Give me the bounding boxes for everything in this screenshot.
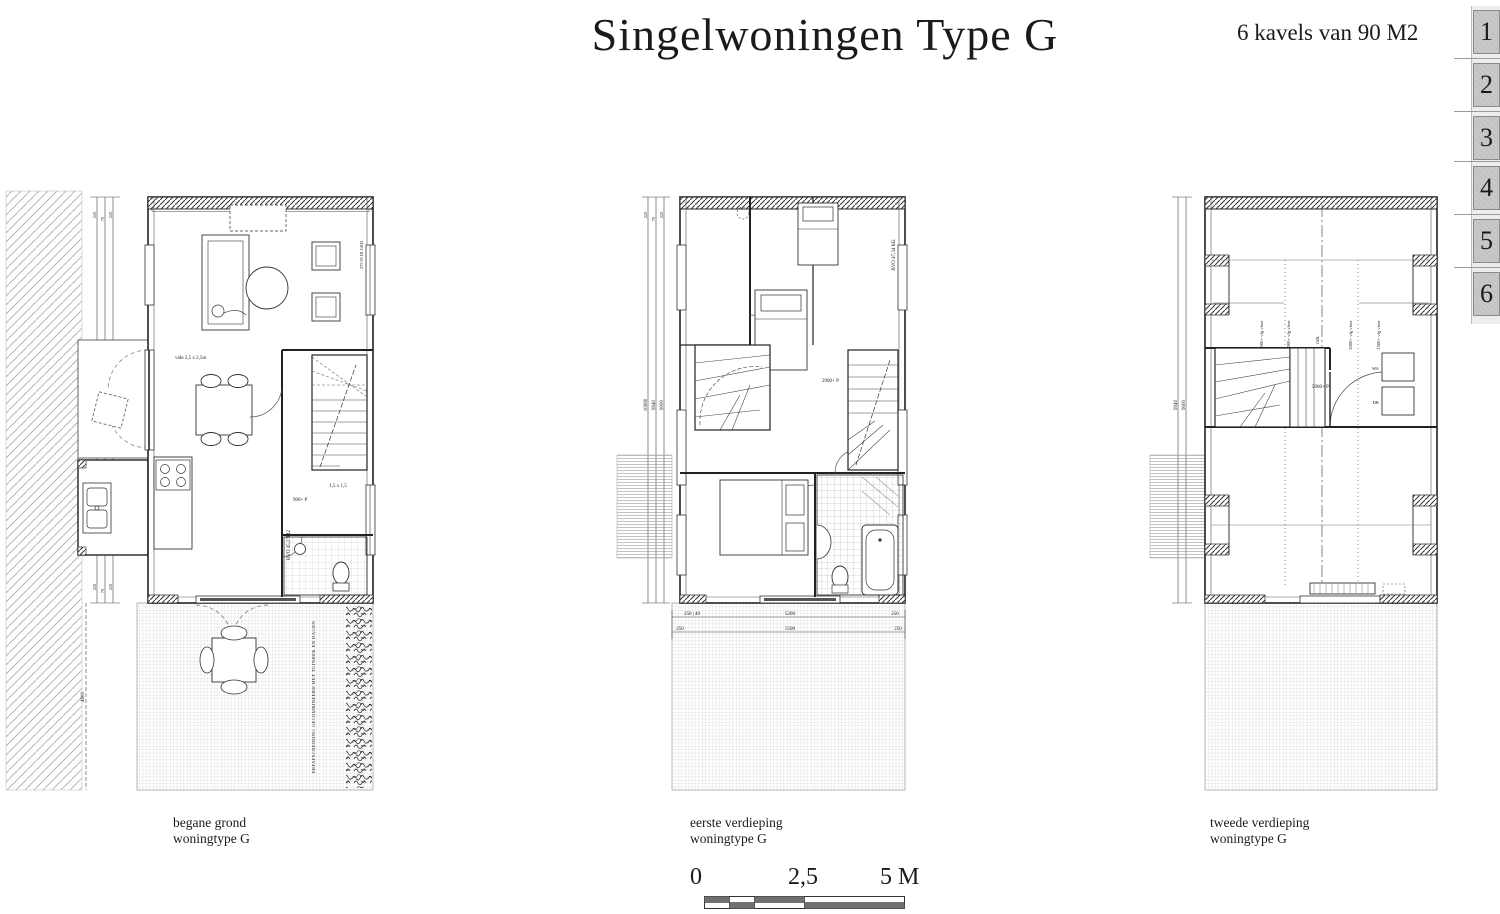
kitchen-annex bbox=[78, 460, 148, 555]
staircase-left bbox=[695, 345, 770, 430]
svg-text:70: 70 bbox=[651, 216, 656, 221]
street-hatch-area bbox=[6, 191, 82, 790]
svg-text:2000+ vlg vloer: 2000+ vlg vloer bbox=[1286, 320, 1291, 350]
svg-text:9940: 9940 bbox=[1174, 400, 1179, 411]
washbasin bbox=[295, 544, 306, 555]
dryer-label: DR bbox=[1373, 400, 1380, 405]
sofa bbox=[202, 235, 249, 330]
garden bbox=[1205, 603, 1437, 790]
washer-label: WA bbox=[1372, 366, 1380, 371]
svg-text:2000+ vlg vloer: 2000+ vlg vloer bbox=[1348, 320, 1353, 350]
svg-text:220: 220 bbox=[108, 211, 113, 218]
page-title: Singelwoningen Type G bbox=[500, 8, 1150, 61]
garden-begane-grond: ERFAFSCHEIDING GECOMBINEERD MET TUINHEK … bbox=[137, 603, 373, 790]
sheet-subtitle: 6 kavels van 90 M2 bbox=[1237, 20, 1447, 46]
sheet-tab-2[interactable]: 2 bbox=[1473, 63, 1500, 107]
toilet bbox=[333, 562, 349, 584]
area-label: BVO 45,27M2 bbox=[287, 530, 292, 561]
caption-tweede-verdieping: tweede verdieping woningtype G bbox=[1210, 815, 1309, 846]
level-label: 2900+ P bbox=[822, 379, 839, 384]
kitchen bbox=[154, 457, 192, 549]
sheet-tab-6[interactable]: 6 bbox=[1473, 272, 1500, 316]
level-label: 5000+ P bbox=[1312, 385, 1329, 390]
toilet-room bbox=[284, 537, 367, 595]
svg-text:250: 250 bbox=[894, 627, 902, 632]
sheet-tab-1[interactable]: 1 bbox=[1473, 10, 1500, 54]
floor-plan-tweede-verdieping: 9940 9000 bbox=[1130, 185, 1475, 810]
double-bed bbox=[720, 480, 808, 555]
dimension-labels-left: 10080 9940 9000 220 70 220 bbox=[643, 211, 665, 411]
vide-dashed-outline bbox=[230, 205, 286, 231]
svg-text:5500: 5500 bbox=[785, 627, 796, 632]
floor-plan-eerste-verdieping: 10080 9940 9000 220 70 220 250 | 40 5200… bbox=[600, 185, 940, 810]
bathtub bbox=[862, 525, 898, 595]
svg-text:70: 70 bbox=[100, 216, 105, 221]
drawing-sheet: Singelwoningen Type G 6 kavels van 90 M2… bbox=[0, 0, 1500, 914]
tab-divider bbox=[1454, 161, 1500, 162]
scale-label-5m: 5 M bbox=[880, 864, 919, 891]
roof-terrace bbox=[617, 455, 672, 558]
tab-divider bbox=[1454, 58, 1500, 59]
scale-label-0: 0 bbox=[690, 864, 702, 891]
caption-line1: begane grond bbox=[173, 815, 250, 831]
coffee-table bbox=[246, 267, 288, 309]
garden-note: ERFAFSCHEIDING GECOMBINEERD MET TUINHEK … bbox=[311, 621, 316, 774]
kitchen-sink bbox=[83, 483, 111, 533]
svg-text:220: 220 bbox=[108, 583, 113, 590]
caption-line1: eerste verdieping bbox=[690, 815, 783, 831]
caption-line2: woningtype G bbox=[173, 831, 250, 847]
area-label: BVO 47,34 M2 bbox=[892, 239, 897, 271]
scale-label-2-5: 2,5 bbox=[788, 864, 818, 891]
svg-text:220: 220 bbox=[92, 211, 97, 218]
svg-text:9940: 9940 bbox=[652, 400, 657, 411]
bed bbox=[798, 203, 838, 265]
svg-text:220: 220 bbox=[659, 211, 664, 218]
terrace-door-leaf bbox=[200, 598, 296, 601]
staircase: 1,5 x 1,5 bbox=[312, 355, 367, 489]
scale-bar bbox=[704, 896, 907, 911]
svg-text:5200: 5200 bbox=[785, 612, 796, 617]
staircase bbox=[1215, 348, 1325, 427]
svg-text:70: 70 bbox=[100, 588, 105, 593]
ridge-label: nok bbox=[1316, 336, 1321, 344]
svg-text:220: 220 bbox=[643, 211, 648, 218]
roof-terrace bbox=[1150, 455, 1205, 558]
floor-plan-begane-grond: 10080 9940 9000 220 70 220 220 70 220 46… bbox=[0, 185, 460, 810]
caption-line2: woningtype G bbox=[690, 831, 783, 847]
balcony bbox=[78, 340, 148, 458]
caption-line1: tweede verdieping bbox=[1210, 815, 1309, 831]
sheet-tab-4[interactable]: 4 bbox=[1473, 166, 1500, 210]
svg-text:4600: 4600 bbox=[81, 692, 86, 703]
level-label: 900+ P bbox=[293, 498, 308, 503]
svg-text:250: 250 bbox=[676, 627, 684, 632]
bathroom bbox=[817, 475, 903, 595]
svg-text:250 | 40: 250 | 40 bbox=[684, 612, 701, 617]
svg-text:9000: 9000 bbox=[660, 400, 665, 411]
staircase-right bbox=[848, 350, 898, 470]
svg-text:220: 220 bbox=[92, 583, 97, 590]
caption-eerste-verdieping: eerste verdieping woningtype G bbox=[690, 815, 783, 846]
sheet-tab-3[interactable]: 3 bbox=[1473, 116, 1500, 160]
hedge-strip bbox=[346, 605, 372, 788]
svg-text:250: 250 bbox=[891, 612, 899, 617]
dining-table bbox=[196, 385, 252, 435]
caption-line2: woningtype G bbox=[1210, 831, 1309, 847]
sheet-tab-5[interactable]: 5 bbox=[1473, 219, 1500, 263]
tab-divider bbox=[1454, 111, 1500, 112]
window-code: 275 95 D1 GRD bbox=[359, 241, 364, 269]
svg-text:1500+ vlg vloer: 1500+ vlg vloer bbox=[1376, 320, 1381, 350]
stair-size-label: 1,5 x 1,5 bbox=[329, 484, 347, 489]
svg-text:10080: 10080 bbox=[644, 398, 649, 411]
vide-label: vide 2,5 x 2,5m bbox=[175, 356, 206, 361]
svg-text:1500+ vlg vloer: 1500+ vlg vloer bbox=[1259, 320, 1264, 350]
dimension-labels-left: 9940 9000 bbox=[1174, 400, 1187, 411]
svg-text:9000: 9000 bbox=[1182, 400, 1187, 411]
caption-begane-grond: begane grond woningtype G bbox=[173, 815, 250, 846]
